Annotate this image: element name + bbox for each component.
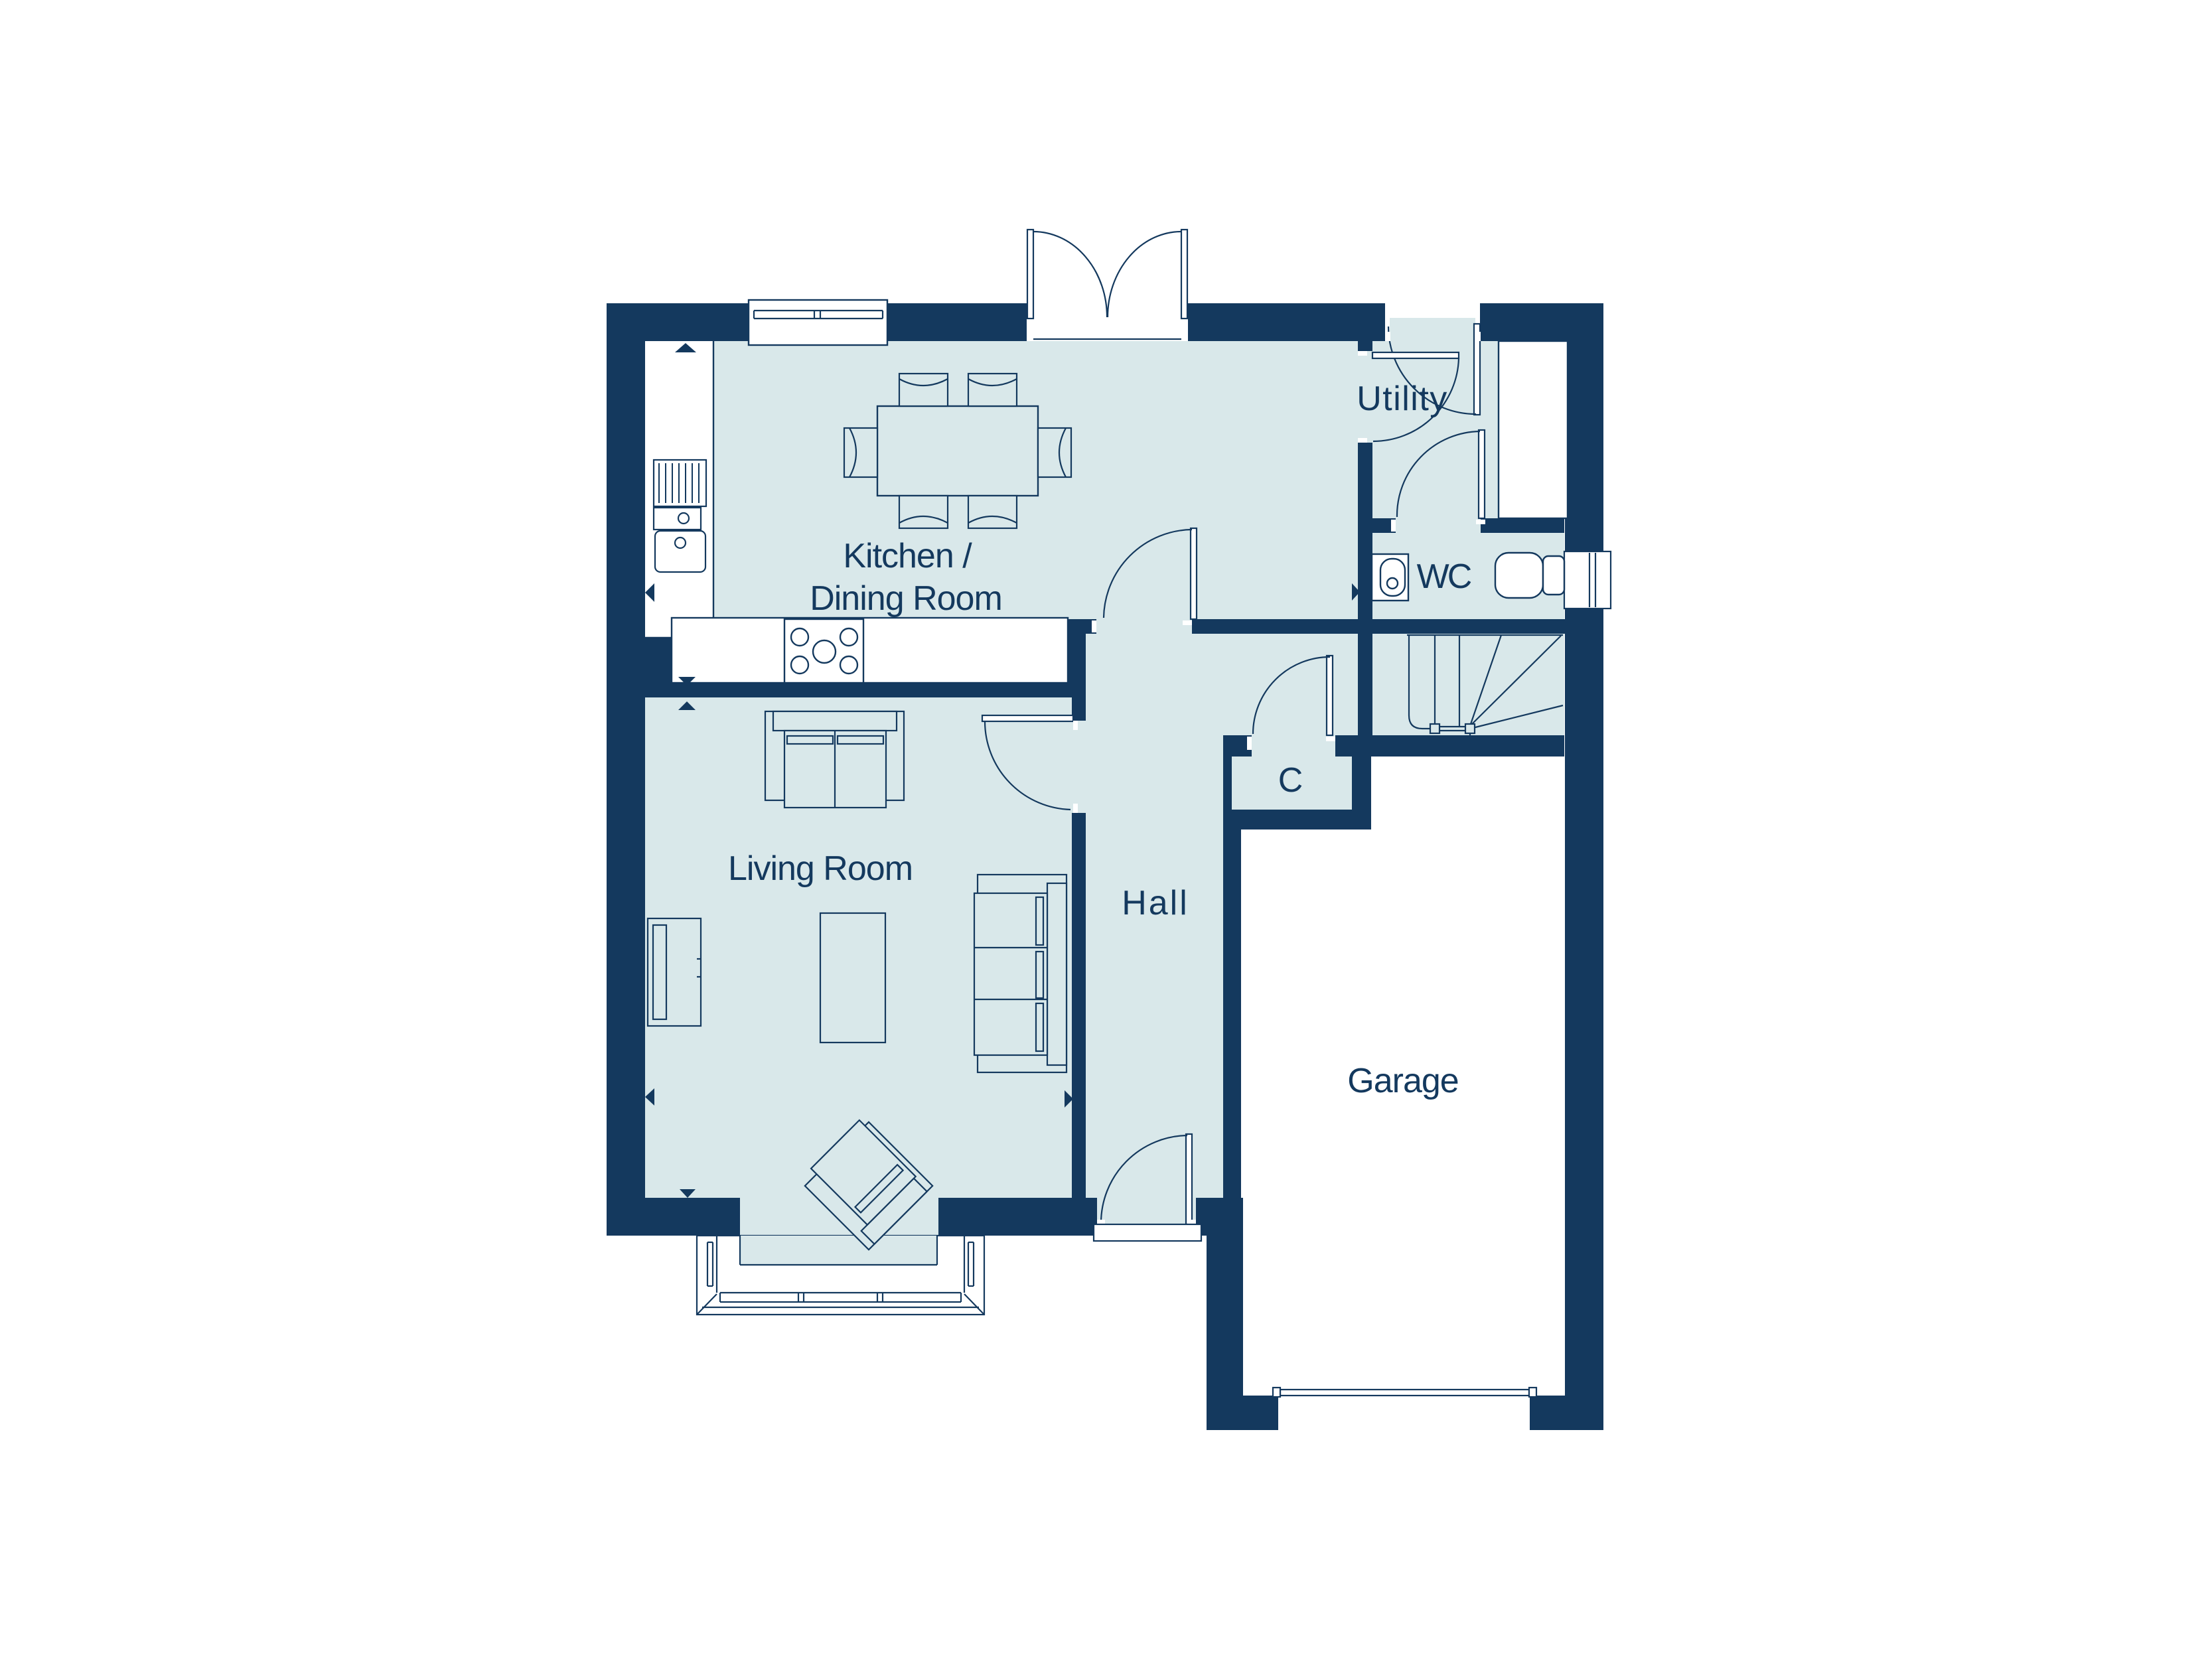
svg-text:Living Room: Living Room bbox=[728, 849, 913, 888]
svg-text:C: C bbox=[1278, 761, 1303, 800]
svg-text:Garage: Garage bbox=[1347, 1062, 1458, 1100]
svg-text:Kitchen /: Kitchen / bbox=[843, 537, 972, 575]
svg-text:Dining Room: Dining Room bbox=[810, 579, 1002, 618]
svg-text:Utility: Utility bbox=[1357, 380, 1448, 418]
svg-text:WC: WC bbox=[1417, 557, 1471, 596]
svg-text:Hall: Hall bbox=[1122, 884, 1189, 922]
